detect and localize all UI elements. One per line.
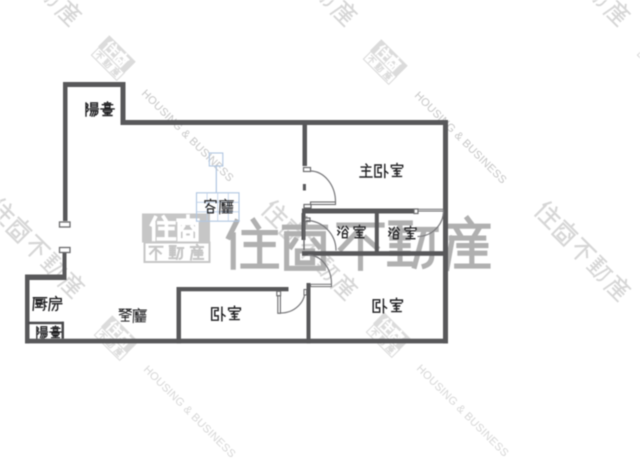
svg-text:HOUSING & BUSINESS: HOUSING & BUSINESS — [412, 90, 509, 187]
svg-text:HOUSING & BUSINESS: HOUSING & BUSINESS — [139, 88, 236, 185]
svg-text:HOUSING & BUSINESS: HOUSING & BUSINESS — [141, 364, 238, 461]
svg-text:HOUSING & BUSINESS: HOUSING & BUSINESS — [414, 363, 511, 460]
